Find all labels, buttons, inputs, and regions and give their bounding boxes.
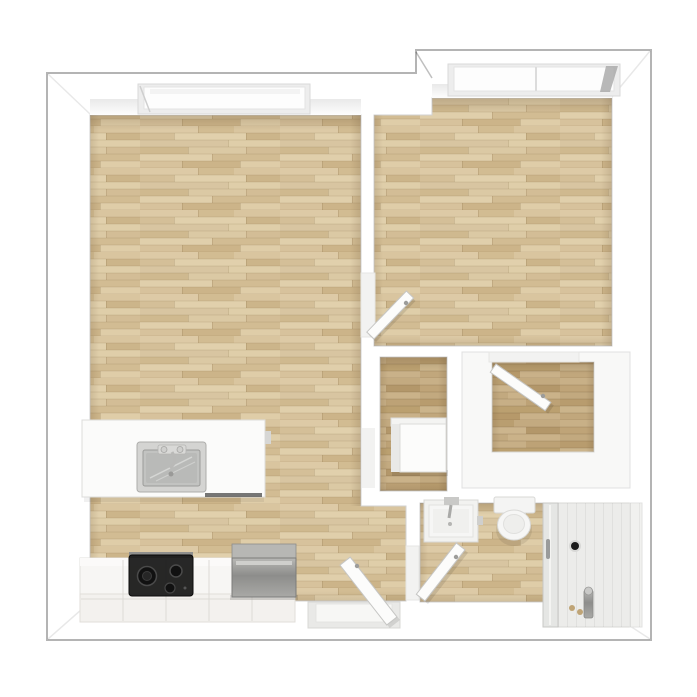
living-shade-right bbox=[350, 115, 361, 506]
kitchen-sink bbox=[137, 442, 206, 492]
water-heater bbox=[391, 418, 448, 476]
storage-shade-bottom bbox=[380, 482, 447, 491]
bathroom-doorway bbox=[406, 546, 419, 600]
burner bbox=[165, 583, 175, 593]
washbasin bbox=[424, 497, 478, 542]
island-kick-shadow bbox=[205, 493, 262, 497]
bedroom-shade-top bbox=[432, 98, 612, 113]
wall-fitting bbox=[477, 516, 483, 525]
door-handle bbox=[355, 564, 359, 568]
cooktop bbox=[129, 552, 193, 596]
room-walk-in-closet bbox=[462, 352, 630, 488]
room-shower bbox=[543, 503, 642, 627]
oven-handle bbox=[236, 561, 292, 565]
toilet bbox=[494, 497, 535, 546]
storage-shade-top bbox=[380, 357, 447, 370]
oven bbox=[230, 544, 298, 600]
floor-plan-canvas bbox=[0, 0, 697, 697]
shower-floor-lines bbox=[558, 503, 630, 627]
bedroom-window bbox=[448, 64, 620, 96]
closet-doorway bbox=[489, 352, 579, 362]
door-handle bbox=[404, 301, 408, 305]
storage-doorway bbox=[362, 428, 375, 488]
shower-door-handle bbox=[546, 539, 550, 559]
door-handle bbox=[454, 555, 458, 559]
bedroom-floor bbox=[374, 98, 612, 346]
floor-plan bbox=[0, 0, 697, 697]
bedroom-shade-bottom bbox=[374, 336, 612, 346]
burner bbox=[170, 565, 182, 577]
kitchen-island bbox=[82, 420, 271, 502]
living-shade-top bbox=[90, 115, 361, 130]
sink-drain bbox=[169, 472, 174, 477]
closet-shade-right bbox=[586, 362, 594, 452]
shower-wall-panel-lines bbox=[630, 503, 642, 627]
shower-drain-icon bbox=[569, 540, 581, 552]
living-window bbox=[138, 84, 310, 114]
living-shade-left bbox=[90, 115, 99, 601]
room-living-kitchen bbox=[90, 99, 406, 601]
room-storage bbox=[380, 357, 448, 491]
bathroom-shade-bottom bbox=[420, 593, 543, 602]
storage-shade-left bbox=[380, 357, 388, 491]
island-outlet bbox=[265, 431, 271, 444]
bedroom-shade-right bbox=[601, 98, 612, 346]
basin-faucet bbox=[444, 497, 459, 505]
door-handle bbox=[541, 394, 545, 398]
shower-glass-door bbox=[543, 503, 558, 627]
